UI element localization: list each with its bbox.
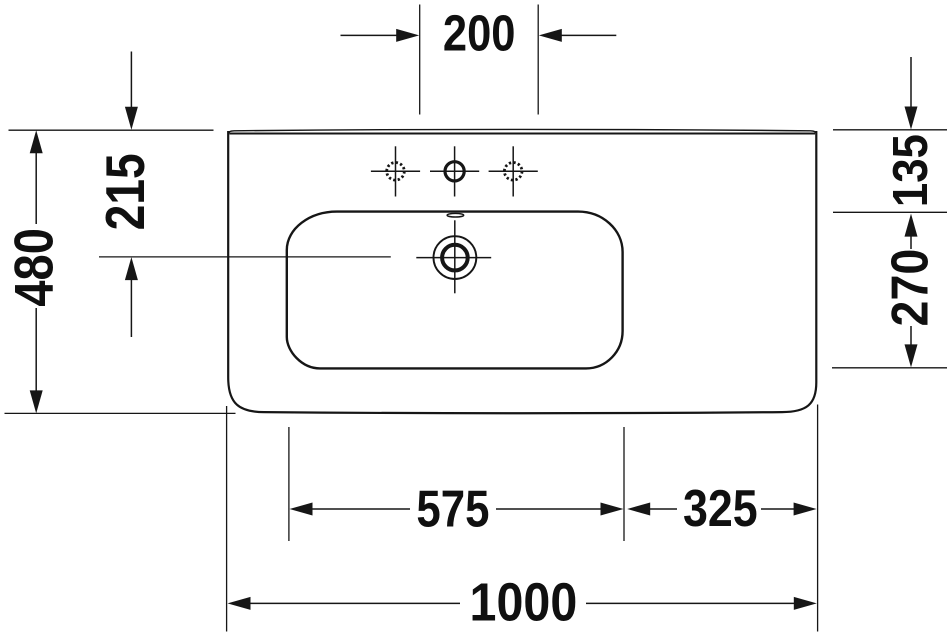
svg-text:200: 200 xyxy=(443,5,516,62)
svg-text:215: 215 xyxy=(94,153,156,230)
svg-text:480: 480 xyxy=(3,228,64,307)
svg-text:325: 325 xyxy=(683,480,758,538)
svg-text:270: 270 xyxy=(881,249,939,327)
svg-text:1000: 1000 xyxy=(470,572,578,632)
svg-text:575: 575 xyxy=(416,481,489,538)
svg-text:135: 135 xyxy=(883,134,938,207)
